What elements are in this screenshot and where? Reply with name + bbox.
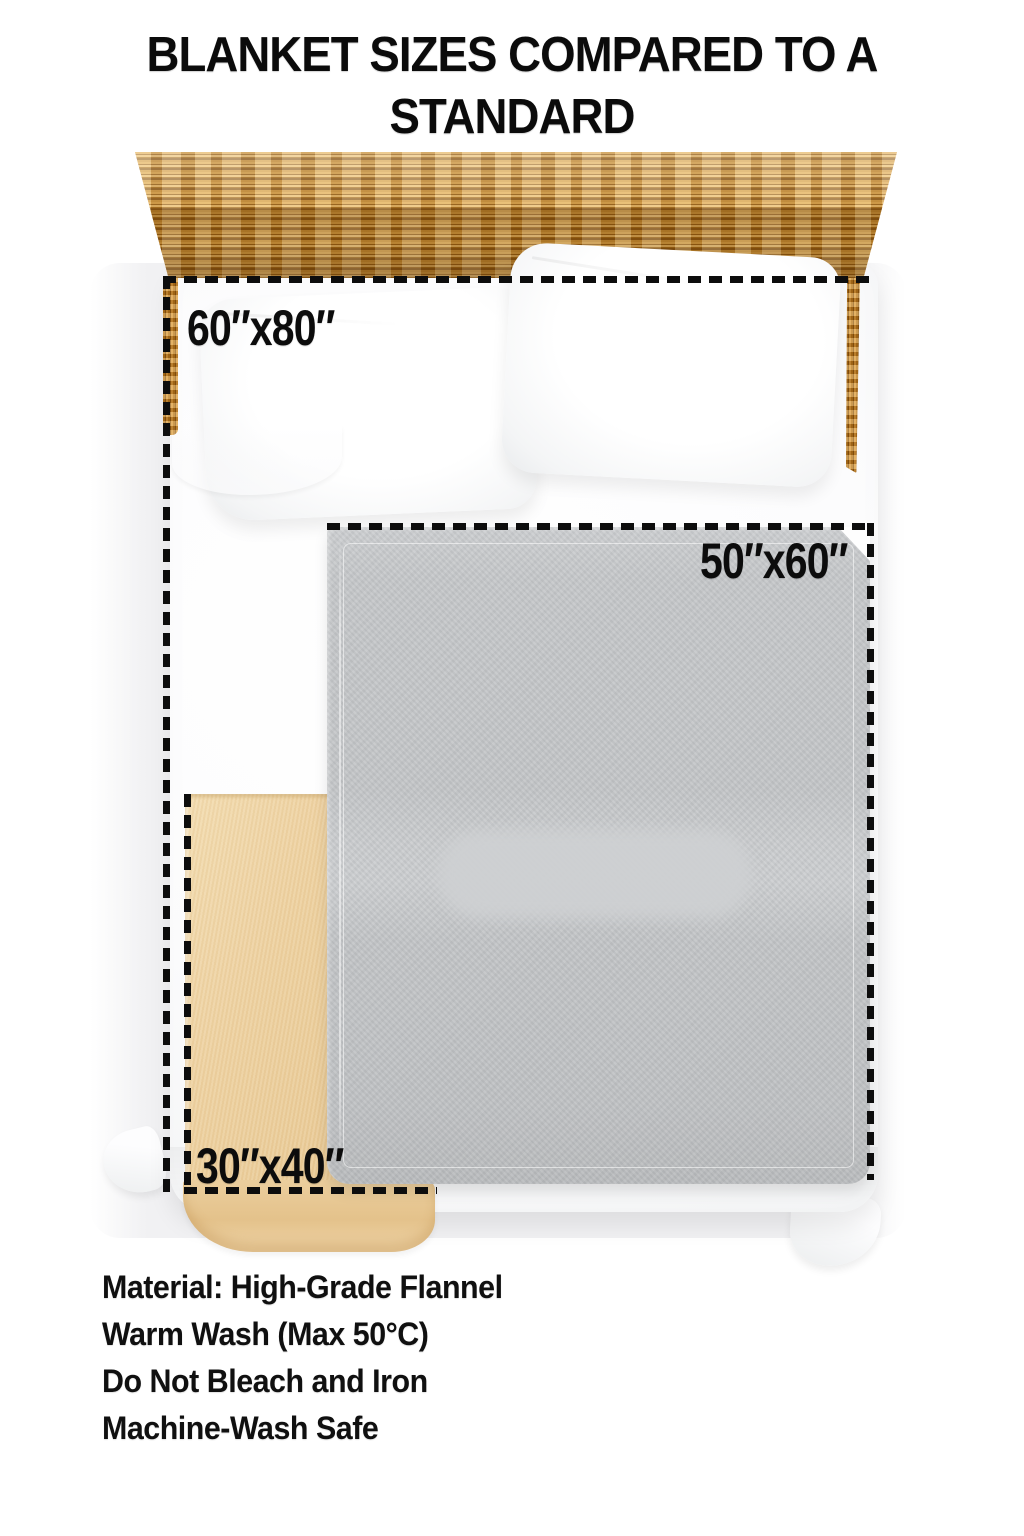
care-line-wash: Warm Wash (Max 50°C) [102,1311,503,1358]
care-line-bleach: Do Not Bleach and Iron [102,1358,503,1405]
outline-50x60-right [867,523,874,1180]
size-label-60x80: 60″x80″ [187,303,335,353]
outline-50x60-top [327,523,874,530]
size-label-30x40: 30″x40″ [196,1141,344,1191]
blanket-sheen [437,830,752,918]
outline-60x80-top [163,276,869,283]
blanket-size-infographic: BLANKET SIZES COMPARED TO A STANDARD QUE… [0,0,1024,1536]
outline-60x80-left [163,276,170,1194]
blanket-30x40 [185,794,343,1192]
blanket-50x60 [327,527,870,1184]
outline-30x40-left [184,794,191,1194]
size-label-50x60: 50″x60″ [700,536,848,586]
care-instructions: Material: High-Grade Flannel Warm Wash (… [102,1264,503,1452]
care-line-material: Material: High-Grade Flannel [102,1264,503,1311]
blanket-seam [339,533,341,1174]
care-line-machine: Machine-Wash Safe [102,1405,503,1452]
